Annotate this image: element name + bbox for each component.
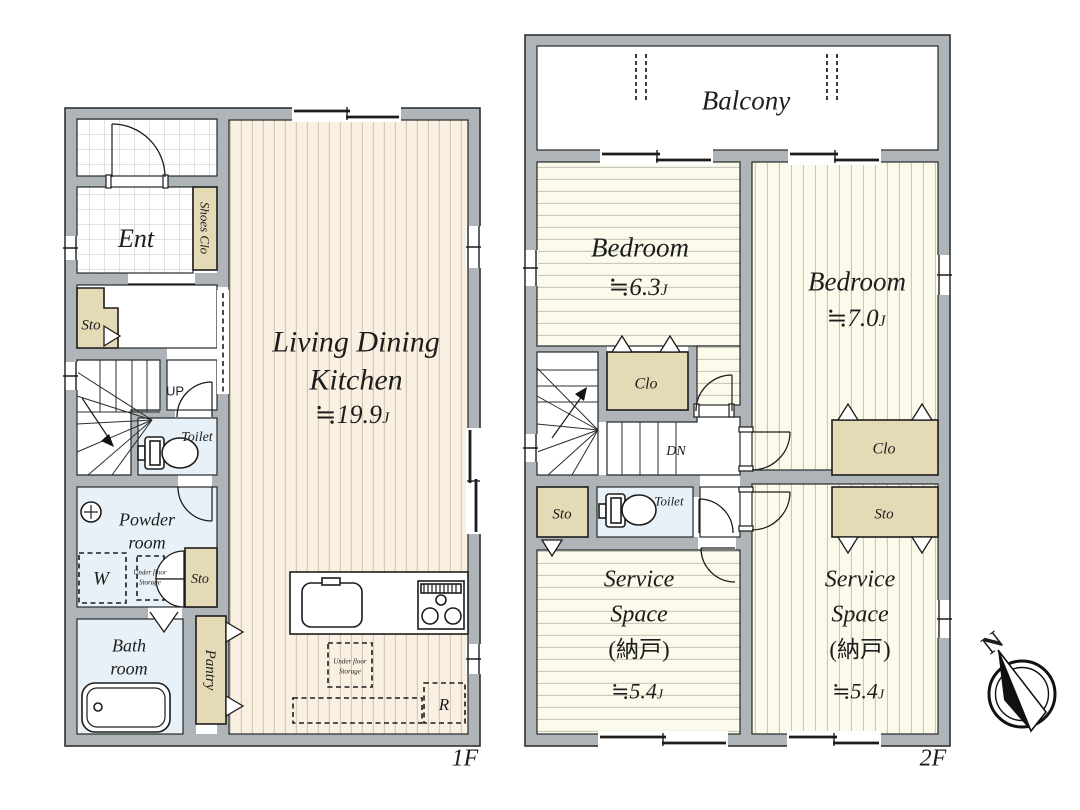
stairs-dn-label: DN (665, 444, 686, 459)
bedroom-a-floor-ext (697, 346, 740, 405)
stove-icon (418, 581, 464, 629)
room-label-bath-2: room (110, 658, 147, 678)
room-label-service-a-2: Space (610, 601, 668, 627)
kitchen-counter (290, 572, 468, 634)
bathtub-icon (82, 683, 170, 732)
window (523, 250, 538, 286)
window-slider-balcony (600, 148, 713, 165)
room-label-toilet-2f: Toilet (654, 494, 684, 509)
room-label-shoes-clo: Shoes Clo (197, 202, 212, 255)
room-label-clo-right: Clo (872, 441, 895, 458)
compass-north-label: N (976, 625, 1009, 660)
label-ufs-powder-1: Under floor (133, 568, 167, 576)
label-ufs-kitchen-2: Storage (339, 667, 361, 675)
room-label-sto-entry: Sto (81, 317, 101, 333)
room-label-toilet-1f: Toilet (181, 430, 213, 445)
room-label-ldk-1: Living Dining (271, 326, 440, 359)
room-label-clo-mid: Clo (634, 376, 657, 393)
floor-plan-page: Ent Shoes Clo Sto UP Toilet Powder room … (0, 0, 1080, 810)
room-label-powder-2: room (128, 532, 165, 552)
room-label-service-b-1: Service (825, 566, 896, 592)
room-label-sto-powder: Sto (191, 572, 209, 587)
window (937, 600, 952, 638)
label-ufs-powder-2: Storage (139, 578, 161, 586)
room-label-bedroom-b: Bedroom (808, 266, 906, 296)
laundry-pan-icon (81, 502, 101, 522)
label-ufs-kitchen-1: Under floor (333, 657, 367, 665)
room-size-service-b: ≒5.4J (832, 679, 885, 704)
window-slider-bottom (787, 731, 881, 748)
room-size-ldk: ≒19.9J (315, 400, 390, 429)
ldk-opening (217, 290, 229, 394)
compass-icon: N (976, 625, 1055, 731)
room-label-bath-1: Bath (112, 635, 146, 655)
window (466, 644, 481, 674)
window-slider-bottom (598, 731, 728, 748)
window (523, 434, 538, 462)
porch-floor (77, 119, 217, 176)
room-label-balcony: Balcony (702, 85, 790, 115)
window-slider-balcony (788, 148, 881, 165)
stairs-up-label: UP (166, 384, 184, 399)
room-label-service-a-3: (納戸) (608, 637, 669, 662)
window (937, 255, 952, 295)
window-slider-tall (466, 428, 481, 534)
label-fridge: R (438, 695, 450, 714)
room-label-service-a-1: Service (604, 566, 675, 592)
hall-floor-2f-lower (700, 487, 740, 537)
room-label-pantry: Pantry (202, 649, 218, 691)
room-label-sto-right: Sto (874, 506, 894, 522)
room-label-service-b-2: Space (831, 601, 889, 627)
kitchen-sink-icon (302, 578, 362, 627)
window (466, 226, 481, 268)
room-label-powder-1: Powder (118, 509, 176, 529)
window (63, 236, 78, 260)
room-label-sto-left: Sto (552, 506, 572, 522)
room-label-ent: Ent (117, 224, 155, 253)
floor1-label: 1F (452, 745, 479, 771)
room-label-service-b-3: (納戸) (829, 637, 890, 662)
label-washer: W (93, 569, 111, 590)
floor2-label: 2F (920, 745, 947, 771)
room-label-ldk-2: Kitchen (308, 364, 402, 397)
room-size-bedroom-a: ≒6.3J (608, 274, 668, 301)
toilet-icon-2f (599, 494, 656, 527)
floor-plan-drawing: Ent Shoes Clo Sto UP Toilet Powder room … (0, 0, 1080, 810)
room-label-bedroom-a: Bedroom (591, 232, 689, 262)
window (63, 362, 78, 390)
room-size-bedroom-b: ≒7.0J (826, 305, 886, 332)
window-slider-top (292, 104, 401, 122)
room-size-service-a: ≒5.4J (611, 679, 664, 704)
